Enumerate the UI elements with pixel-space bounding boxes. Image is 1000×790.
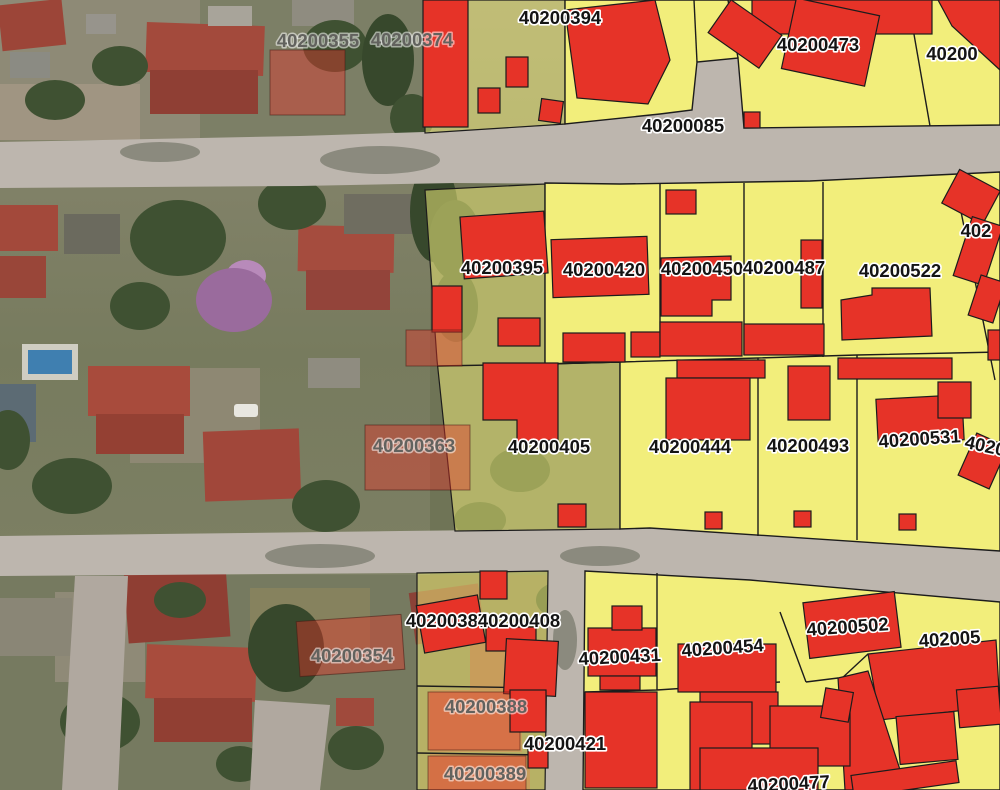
parcel-label-40200374: 40200374 xyxy=(371,29,454,50)
parcel-label-40200389: 40200389 xyxy=(444,763,526,784)
parcel-label-40200394: 40200394 xyxy=(519,7,602,28)
parcel-label-40200487: 40200487 xyxy=(743,257,825,278)
parcel-label-40200355: 40200355 xyxy=(277,30,359,51)
parcel-label-40200: 40200 xyxy=(926,43,977,64)
parked-car xyxy=(234,404,258,417)
parcel-label-40200387: 40200387 xyxy=(406,610,488,631)
cadastral-map-view[interactable]: 4020035540200374402003944020040200085402… xyxy=(0,0,1000,790)
parcel-label-40200522: 40200522 xyxy=(859,260,941,281)
parcel-label-402: 402 xyxy=(961,220,992,241)
parcel-label-40200395: 40200395 xyxy=(461,257,543,278)
parcel-label-40200363: 40200363 xyxy=(373,435,455,456)
parcel-label-40200420: 40200420 xyxy=(563,259,645,280)
parcel-label-40200444: 40200444 xyxy=(649,436,732,457)
parcel-label-40200431: 40200431 xyxy=(578,644,661,669)
parcel-label-40200421: 40200421 xyxy=(524,733,606,754)
parcel-label-40200473: 40200473 xyxy=(777,34,859,55)
map-canvas[interactable]: 4020035540200374402003944020040200085402… xyxy=(0,0,1000,790)
parcel-label-40200085: 40200085 xyxy=(642,115,724,136)
parcel-label-40200354: 40200354 xyxy=(311,645,394,666)
parcel-label-40200450: 40200450 xyxy=(661,258,743,279)
parcel-label-40200477: 40200477 xyxy=(747,771,830,790)
parcel-label-40200405: 40200405 xyxy=(508,436,590,457)
swimming-pool xyxy=(28,350,72,374)
parcel-label-40200388: 40200388 xyxy=(445,696,527,717)
parcel-label-402005: 402005 xyxy=(918,626,981,651)
driveway xyxy=(250,700,330,790)
parcel-label-40200493: 40200493 xyxy=(767,435,849,456)
parcel-label-40200408: 40200408 xyxy=(478,610,560,631)
